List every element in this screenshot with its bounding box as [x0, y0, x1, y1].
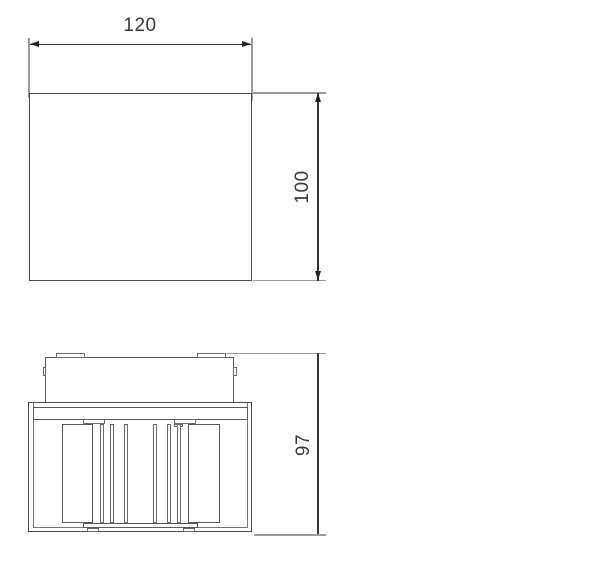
- plan-reflector-strip-3: [124, 424, 128, 523]
- plan-reflector-strip-2: [110, 424, 114, 523]
- plan-mounting-plate-outline: [45, 357, 234, 403]
- plan-bottom-flange: [83, 523, 198, 528]
- plan-glass-panel-right: [188, 424, 220, 523]
- plan-reflector-strip-6: [177, 424, 181, 523]
- front-body-outline: [29, 93, 252, 281]
- plan-glass-panel-left: [62, 424, 93, 523]
- plan-depth-extension-top: [227, 353, 326, 355]
- plan-flange-foot-right: [183, 528, 195, 532]
- front-height-arrow-bottom: [315, 271, 321, 280]
- front-height-arrow-top: [315, 93, 321, 102]
- side-view: 97: [340, 0, 600, 300]
- technical-drawing-canvas: 120 100 97: [0, 0, 600, 572]
- plan-reflector-strip-4: [153, 424, 157, 523]
- front-width-dimension-label: 120: [105, 15, 175, 37]
- front-view: 120 100: [0, 0, 340, 300]
- plan-fixing-clip-left: [43, 367, 47, 377]
- plan-reflector-strip-1: [100, 424, 104, 523]
- plan-depth-dimension-line: [317, 353, 318, 534]
- plan-mounting-tab-left: [56, 353, 85, 358]
- front-height-extension-bottom: [253, 280, 326, 282]
- plan-view: 97: [0, 300, 600, 572]
- front-width-dimension-line: [30, 44, 251, 45]
- front-width-arrow-right: [242, 41, 251, 47]
- plan-reflector-strip-5: [167, 424, 171, 523]
- plan-flange-foot-left: [87, 528, 99, 532]
- plan-depth-dimension-label: 97: [293, 415, 315, 475]
- plan-mounting-tab-right: [197, 353, 226, 358]
- plan-depth-extension-bottom: [254, 534, 326, 536]
- front-height-dimension-line: [317, 93, 318, 281]
- front-width-arrow-left: [30, 41, 39, 47]
- plan-fixing-clip-right: [233, 367, 237, 377]
- plan-backplate-bar: [33, 407, 248, 420]
- front-height-dimension-label: 100: [292, 152, 314, 222]
